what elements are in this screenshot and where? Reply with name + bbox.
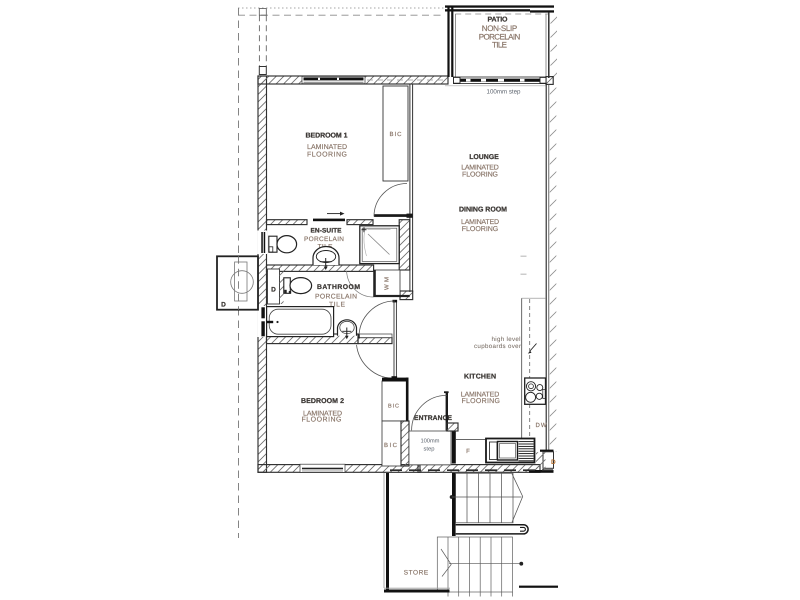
svg-text:D: D	[551, 459, 556, 466]
svg-text:DW: DW	[536, 422, 547, 429]
svg-text:STORE: STORE	[404, 569, 429, 576]
svg-text:PORCELAIN: PORCELAIN	[315, 294, 357, 301]
svg-text:EN-SUITE: EN-SUITE	[311, 228, 343, 235]
svg-text:F: F	[466, 448, 470, 455]
svg-text:LAMINATED: LAMINATED	[461, 219, 499, 226]
svg-text:BEDROOM 2: BEDROOM 2	[301, 398, 344, 405]
svg-text:LAMINATED: LAMINATED	[307, 144, 347, 151]
svg-text:BIC: BIC	[390, 131, 403, 138]
svg-text:D: D	[221, 302, 226, 309]
svg-text:DINING ROOM: DINING ROOM	[459, 206, 507, 213]
svg-text:BEDROOM 1: BEDROOM 1	[306, 132, 348, 139]
svg-text:TILE: TILE	[492, 40, 507, 49]
svg-text:FLOORING: FLOORING	[462, 172, 498, 179]
svg-text:high level: high level	[492, 336, 521, 343]
svg-text:step: step	[424, 447, 435, 453]
svg-text:KITCHEN: KITCHEN	[464, 374, 496, 381]
svg-text:LAMINATED: LAMINATED	[461, 165, 499, 172]
svg-text:BATHROOM: BATHROOM	[317, 284, 360, 291]
svg-text:LOUNGE: LOUNGE	[469, 154, 499, 161]
svg-text:100mm step: 100mm step	[487, 89, 522, 96]
svg-text:FLOORING: FLOORING	[302, 417, 342, 424]
svg-text:cupboards over: cupboards over	[474, 343, 521, 350]
svg-text:BIC: BIC	[388, 404, 399, 410]
svg-text:PATIO: PATIO	[488, 17, 509, 24]
svg-text:PORCELAIN: PORCELAIN	[304, 236, 344, 243]
svg-text:FLOORING: FLOORING	[307, 152, 347, 159]
svg-text:FLOORING: FLOORING	[461, 398, 500, 405]
svg-text:FLOORING: FLOORING	[462, 226, 499, 233]
svg-text:BIC: BIC	[384, 442, 398, 449]
svg-text:D: D	[271, 287, 276, 294]
svg-text:100mm: 100mm	[421, 438, 440, 445]
